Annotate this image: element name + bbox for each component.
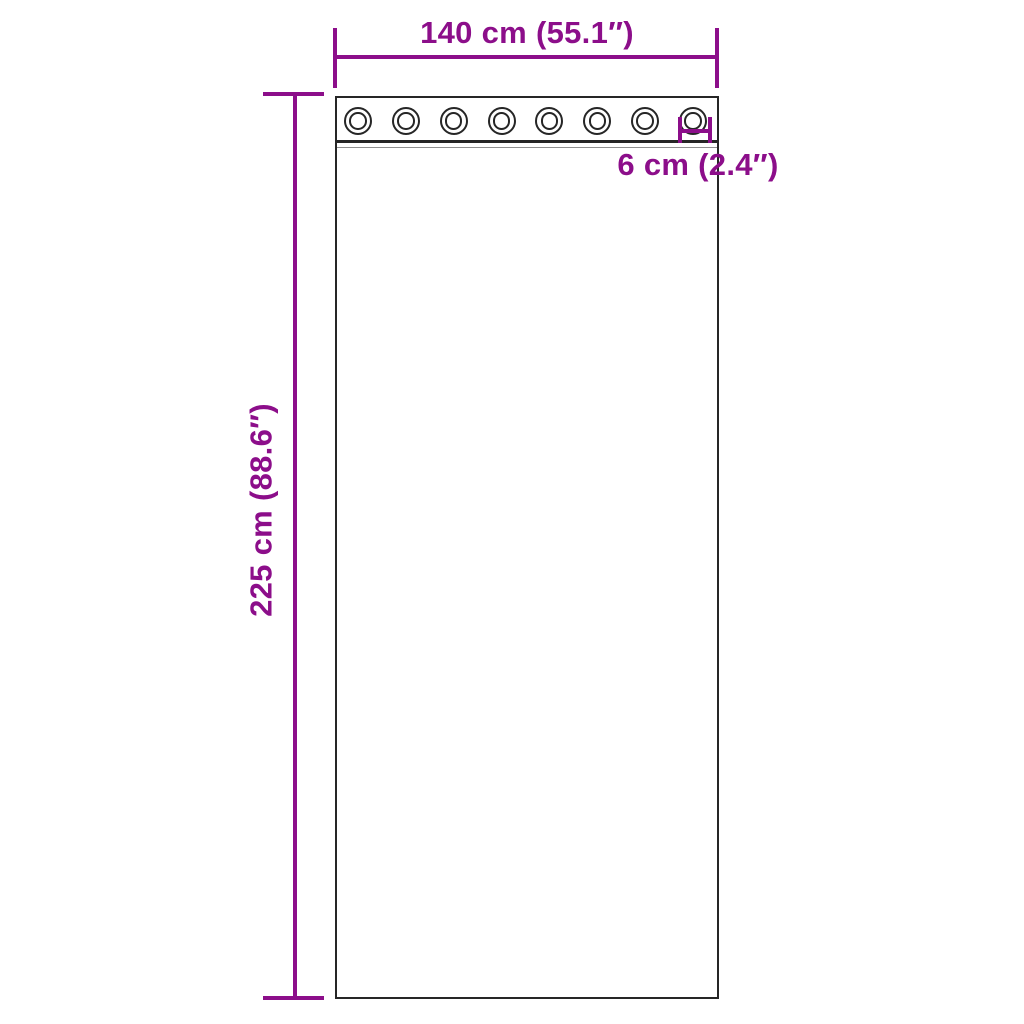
width-dimension-line [335,55,719,59]
eyelet-inner-ring [684,112,702,130]
dimension-diagram: 140 cm (55.1″) 225 cm (88.6″) 6 cm (2.4″… [0,0,1024,1024]
eyelet-inner-ring [349,112,367,130]
grommet-dimension-bar [678,129,712,133]
eyelet-inner-ring [589,112,607,130]
height-dimension-line [293,92,297,1000]
eyelet [488,107,516,135]
height-dimension-label: 225 cm (88.6″) [246,403,277,617]
eyelet-inner-ring [636,112,654,130]
eyelet-inner-ring [493,112,511,130]
eyelet-inner-ring [445,112,463,130]
width-dimension-label: 140 cm (55.1″) [335,17,719,48]
curtain-panel-outline [335,96,719,999]
eyelet [392,107,420,135]
height-dimension-bottom-cap [263,996,324,1000]
eyelet-inner-ring [397,112,415,130]
eyelet [344,107,372,135]
eyelet [631,107,659,135]
height-dimension-top-cap [263,92,324,96]
eyelet-inner-ring [541,112,559,130]
grommet-dimension-label: 6 cm (2.4″) [558,149,838,180]
eyelet [440,107,468,135]
grommet-band-bottom-line [337,140,717,143]
